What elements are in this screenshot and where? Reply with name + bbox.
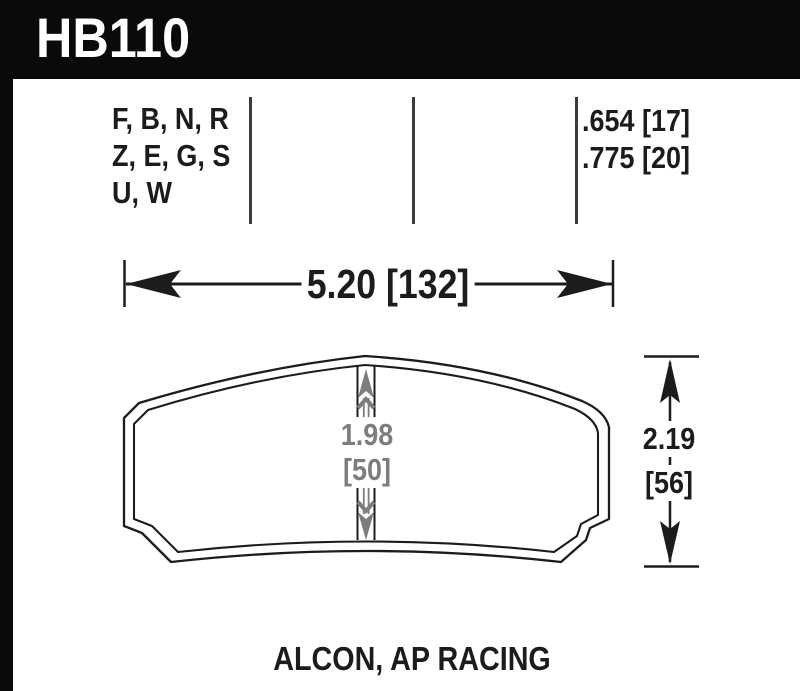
pad-height-mm-label: [50]: [338, 452, 396, 488]
overall-height-dimension: [644, 357, 699, 567]
arrowhead-down-icon: [358, 512, 374, 540]
arrow-chevron-up-icon: [358, 399, 374, 408]
arrow-chevron-down-icon: [358, 502, 374, 511]
pad-drawing: [0, 0, 800, 691]
overall-width-label: 5.20 [132]: [301, 261, 474, 308]
pad-height-inches-label: 1.98: [336, 417, 399, 453]
arrowhead-up-icon: [358, 369, 374, 398]
applications-label: ALCON, AP RACING: [273, 640, 551, 678]
overall-height-inches-label: 2.19: [638, 421, 701, 457]
overall-height-mm-label: [56]: [640, 465, 698, 501]
brake-pad-spec-sheet: HB110 F, B, N, R Z, E, G, S U, W .654 [1…: [0, 0, 800, 691]
